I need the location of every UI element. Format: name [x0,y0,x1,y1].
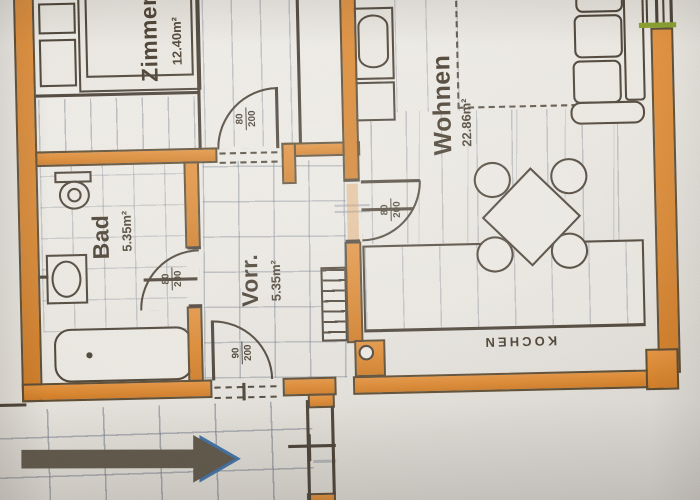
wall-bad-right-lower [187,306,204,382]
sideboard-lower [353,81,395,121]
sofa-cushion [573,14,623,59]
jamb-tick [344,178,359,181]
wall-corner-bottom-right [645,348,679,390]
door-threshold-tick [242,383,245,401]
room-label-bad: Bad [87,203,115,272]
wall-bottom-right [353,369,664,395]
wall-bottom-left [22,379,213,402]
wall-center-door-gap-tint [346,184,359,240]
sofa-back [622,0,646,101]
room-area-bad: 5.35m² [119,201,135,261]
sofa-cushion [572,60,622,105]
door-threshold-entrance [214,385,276,399]
entrance-arrow-head [193,435,234,483]
room-label-vorraum: Vorr. [236,234,265,326]
floor-plan: 80200 80200 80200 90200 Zimmer 12.40m² B… [0,0,700,500]
stairwell-door-tick-h [288,444,336,448]
room-label-kochen: KOCHEN [470,332,570,351]
stairwell-door-tick-v [308,434,312,461]
sofa-armrest [570,100,645,124]
wall-corridor-stub-v [281,143,296,185]
jamb-tick [346,239,361,242]
room-area-zimmer: 12.40m² [168,7,185,76]
room-area-wohnen: 22.86m² [458,88,475,157]
corridor-outer-line [0,403,26,407]
window-green-sill [639,22,676,28]
chair-zimmer [39,39,77,87]
sideboard-tv [357,14,389,69]
sofa-cushion [575,0,623,13]
wall-center-lower [345,241,364,343]
stairwell-wall-line2 [331,406,336,495]
entrance-arrow [21,435,238,483]
door-size-label-bad: 80200 [159,255,185,303]
door-size-label-entrance: 90200 [229,329,255,377]
wall-bad-right-upper [183,161,200,248]
entrance-arrow-shaft [21,450,195,469]
room-label-zimmer: Zimmer [135,0,164,89]
window-frame-line [645,0,648,23]
nightstand [38,3,76,35]
floor-plan-photo: { "rooms": { "zimmer": { "name": "Zimmer… [0,0,700,500]
pencil-lines-zimmer-strip [38,96,201,151]
wall-right-outer [650,27,681,373]
door-threshold-zimmer [219,151,277,164]
radiator [320,267,348,342]
room-label-wohnen: Wohnen [427,47,459,164]
door-size-label-wohnen: 80200 [378,186,404,234]
bathtub [54,326,194,383]
room-area-vorraum: 5.35m² [268,250,284,310]
washbasin-tap [40,275,48,278]
door-size-label-zimmer: 80200 [233,95,259,143]
